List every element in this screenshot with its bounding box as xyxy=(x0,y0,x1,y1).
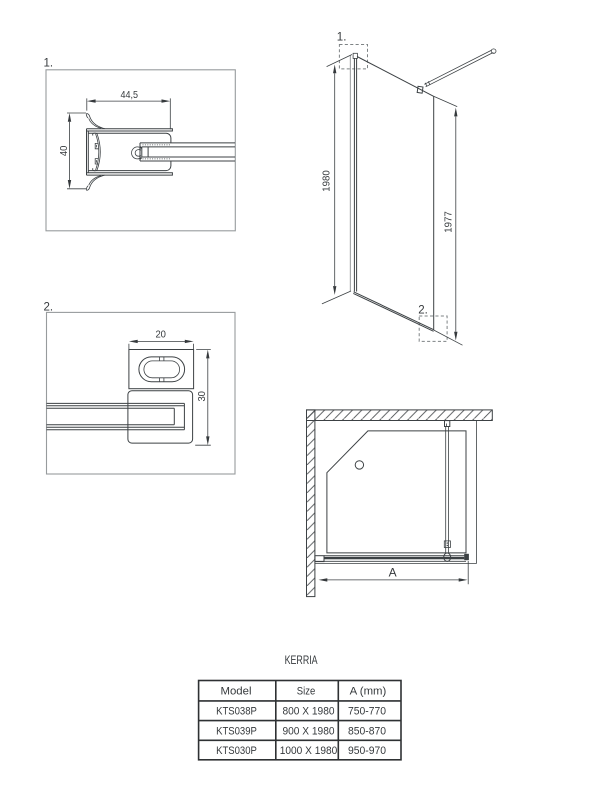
svg-text:1980: 1980 xyxy=(320,170,332,192)
svg-text:2.: 2. xyxy=(418,304,428,316)
svg-text:900 X 1980: 900 X 1980 xyxy=(283,725,335,737)
svg-text:1.: 1. xyxy=(337,32,347,44)
svg-text:A: A xyxy=(389,565,397,579)
svg-text:2.: 2. xyxy=(44,302,54,314)
svg-text:44,5: 44,5 xyxy=(121,89,139,101)
svg-text:Model: Model xyxy=(221,686,252,698)
svg-text:KTS030P: KTS030P xyxy=(216,745,257,757)
svg-text:KERRIA: KERRIA xyxy=(285,655,318,667)
svg-text:40: 40 xyxy=(58,146,70,157)
svg-text:A (mm): A (mm) xyxy=(350,686,387,698)
svg-text:950-970: 950-970 xyxy=(348,745,386,757)
svg-text:800 X 1980: 800 X 1980 xyxy=(283,706,335,718)
svg-text:Size: Size xyxy=(297,686,316,698)
svg-text:750-770: 750-770 xyxy=(348,706,386,718)
svg-text:850-870: 850-870 xyxy=(348,725,386,737)
svg-text:30: 30 xyxy=(196,391,208,402)
svg-text:1.: 1. xyxy=(44,57,54,69)
svg-text:1000 X 1980: 1000 X 1980 xyxy=(280,745,338,757)
svg-text:20: 20 xyxy=(155,329,166,341)
svg-text:KTS038P: KTS038P xyxy=(216,706,257,718)
svg-text:KTS039P: KTS039P xyxy=(216,725,257,737)
svg-text:1977: 1977 xyxy=(443,211,455,233)
